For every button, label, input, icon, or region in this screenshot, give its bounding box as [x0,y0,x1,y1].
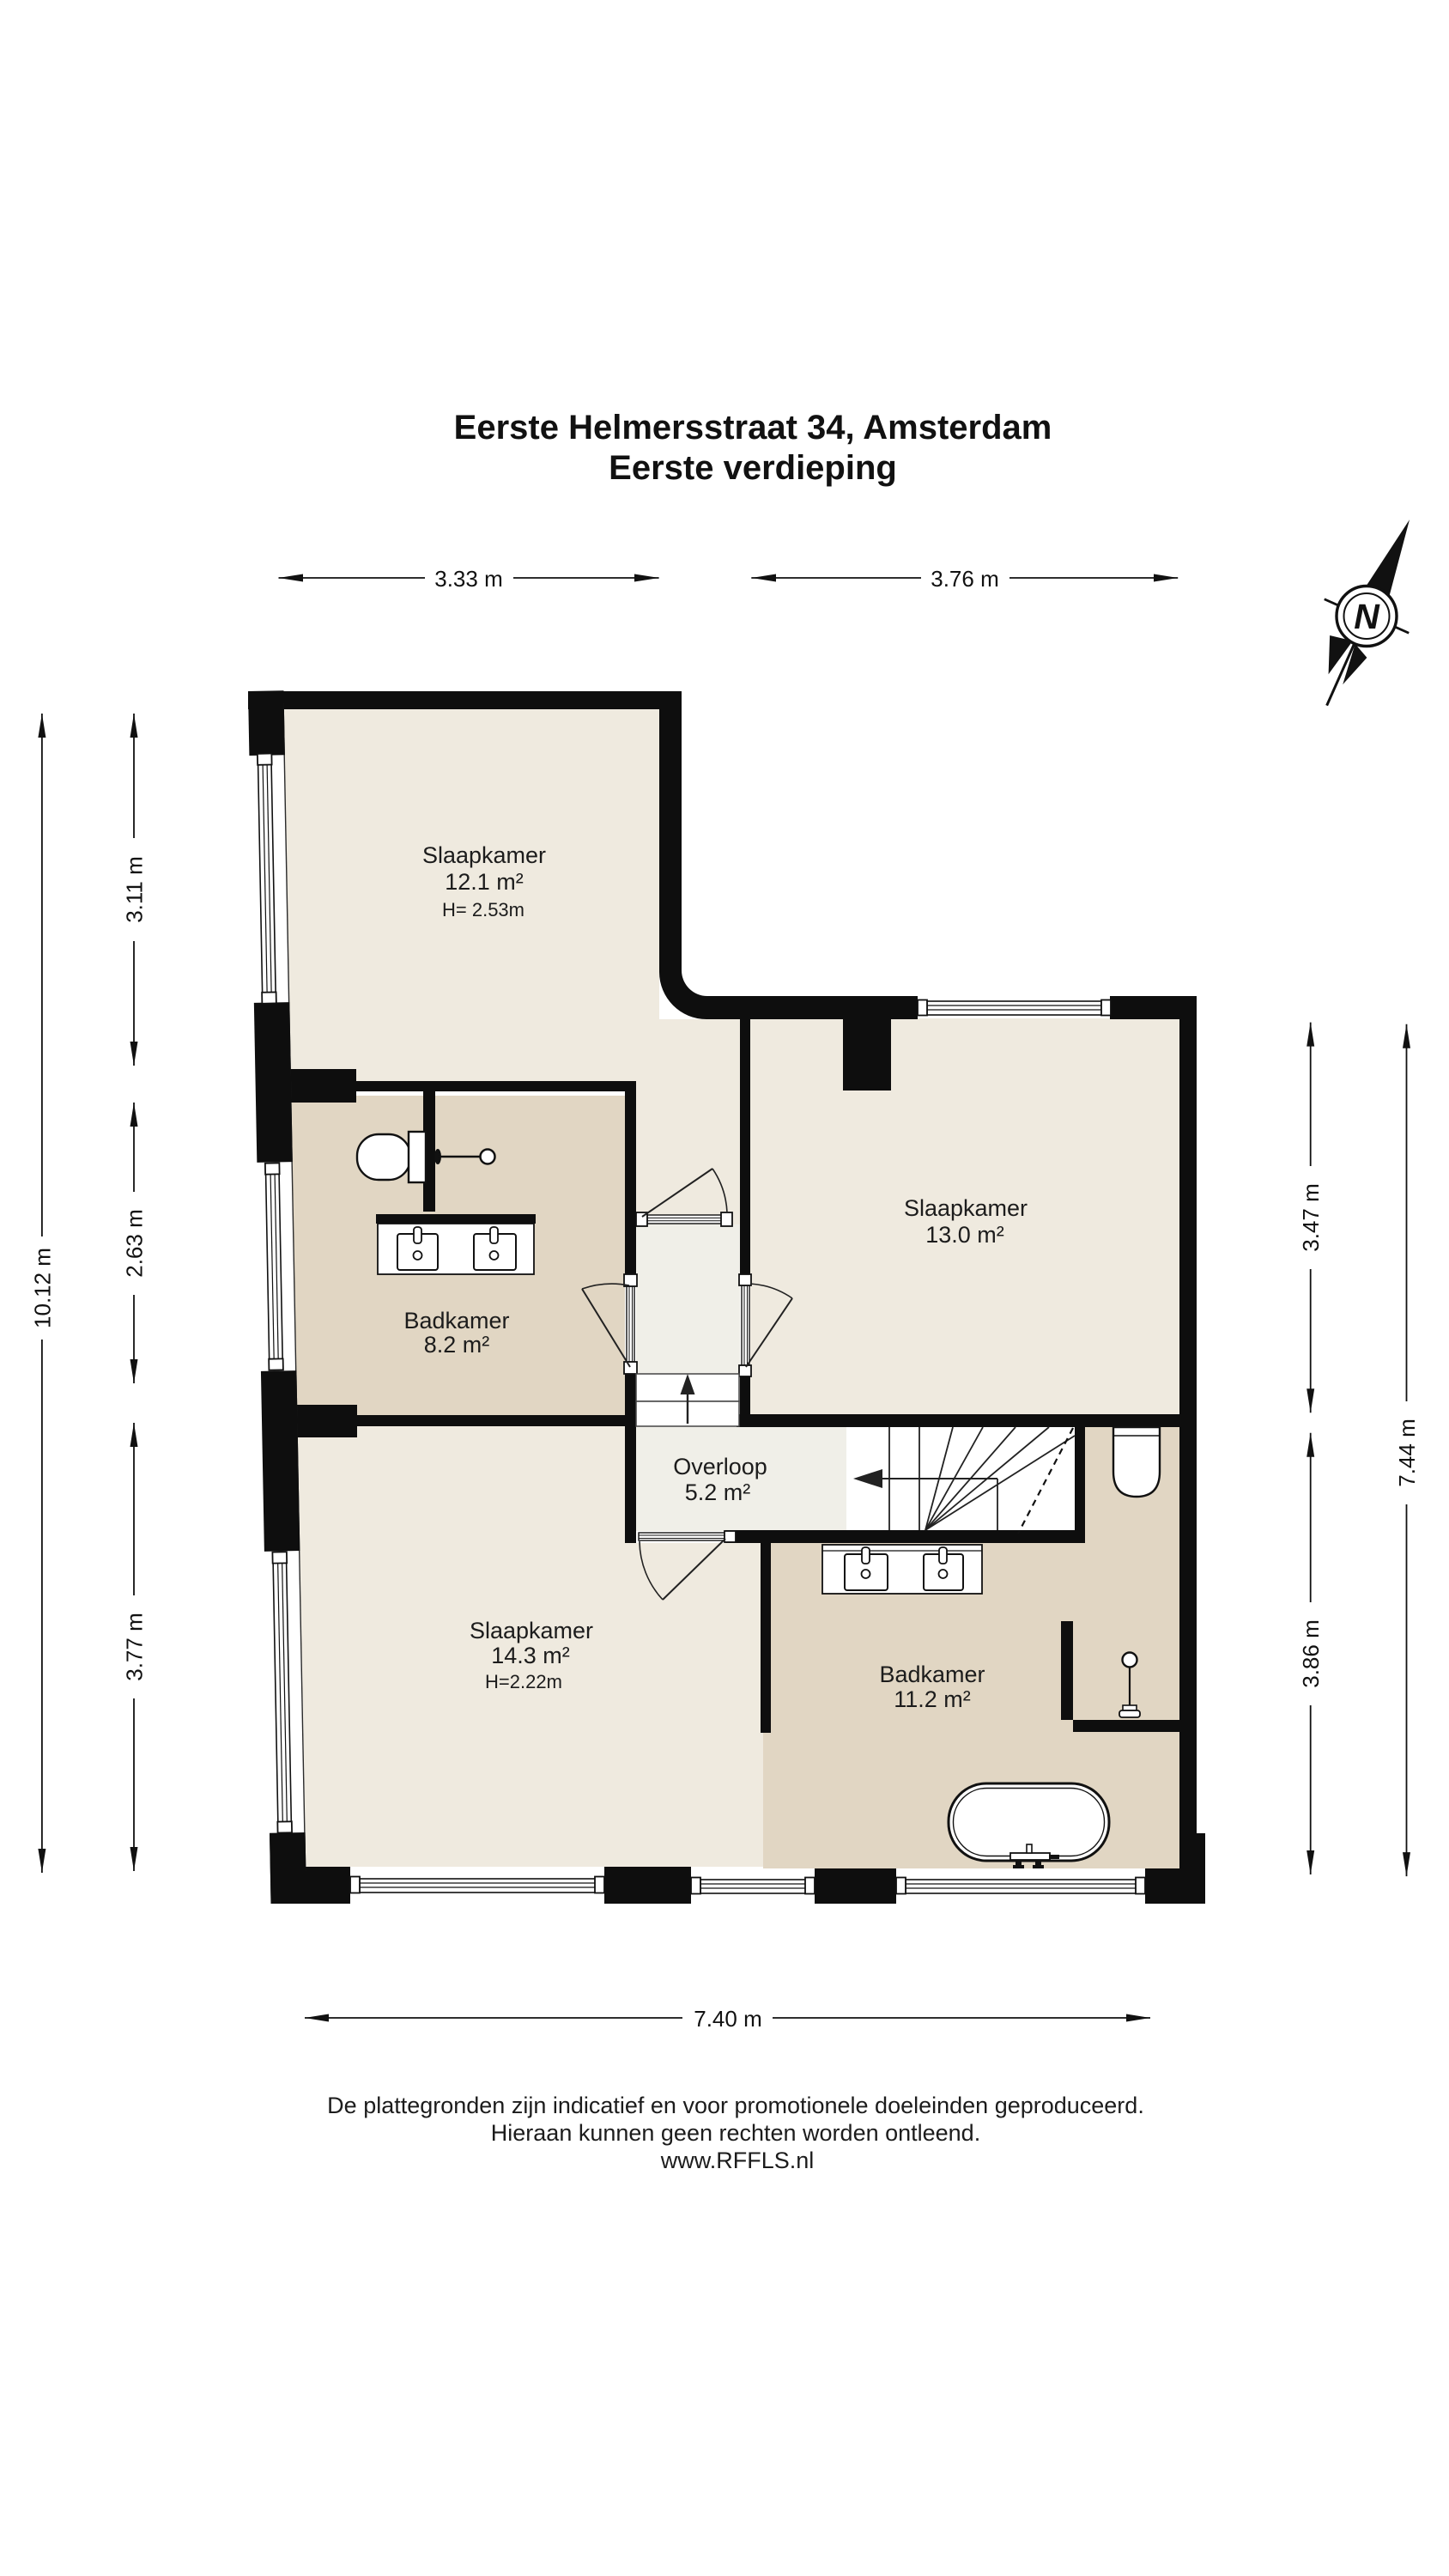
svg-text:N: N [1354,597,1380,636]
svg-text:3.77 m: 3.77 m [122,1613,148,1681]
svg-text:2.63 m: 2.63 m [122,1209,148,1278]
svg-text:3.86 m: 3.86 m [1298,1619,1324,1688]
svg-text:H=2.22m: H=2.22m [485,1671,562,1692]
svg-text:3.11 m: 3.11 m [122,856,148,923]
svg-text:Slaapkamer: Slaapkamer [470,1618,593,1643]
svg-text:Slaapkamer: Slaapkamer [904,1195,1028,1221]
svg-text:De plattegronden zijn indicati: De plattegronden zijn indicatief en voor… [327,2093,1144,2118]
svg-text:3.76 m: 3.76 m [931,566,999,592]
svg-text:Eerste verdieping: Eerste verdieping [609,449,897,487]
svg-text:Overloop: Overloop [673,1454,767,1479]
svg-text:7.40 m: 7.40 m [694,2006,762,2032]
svg-text:7.44 m: 7.44 m [1394,1419,1420,1487]
svg-text:Eerste Helmersstraat 34, Amste: Eerste Helmersstraat 34, Amsterdam [454,409,1052,447]
svg-text:8.2 m²: 8.2 m² [424,1332,490,1358]
svg-text:Badkamer: Badkamer [403,1308,509,1334]
svg-text:3.33 m: 3.33 m [434,566,503,592]
svg-text:5.2 m²: 5.2 m² [685,1479,751,1505]
svg-text:www.RFFLS.nl: www.RFFLS.nl [660,2148,815,2173]
svg-text:10.12 m: 10.12 m [29,1248,55,1328]
svg-text:Slaapkamer: Slaapkamer [422,842,546,868]
svg-text:11.2 m²: 11.2 m² [894,1686,971,1712]
svg-text:14.3 m²: 14.3 m² [491,1643,570,1668]
svg-text:Hieraan kunnen geen rechten wo: Hieraan kunnen geen rechten worden ontle… [491,2120,980,2146]
svg-text:12.1 m²: 12.1 m² [445,869,524,895]
svg-text:3.47 m: 3.47 m [1298,1183,1324,1252]
svg-text:13.0 m²: 13.0 m² [925,1222,1004,1248]
svg-text:Badkamer: Badkamer [879,1662,985,1687]
svg-text:H= 2.53m: H= 2.53m [442,899,524,920]
